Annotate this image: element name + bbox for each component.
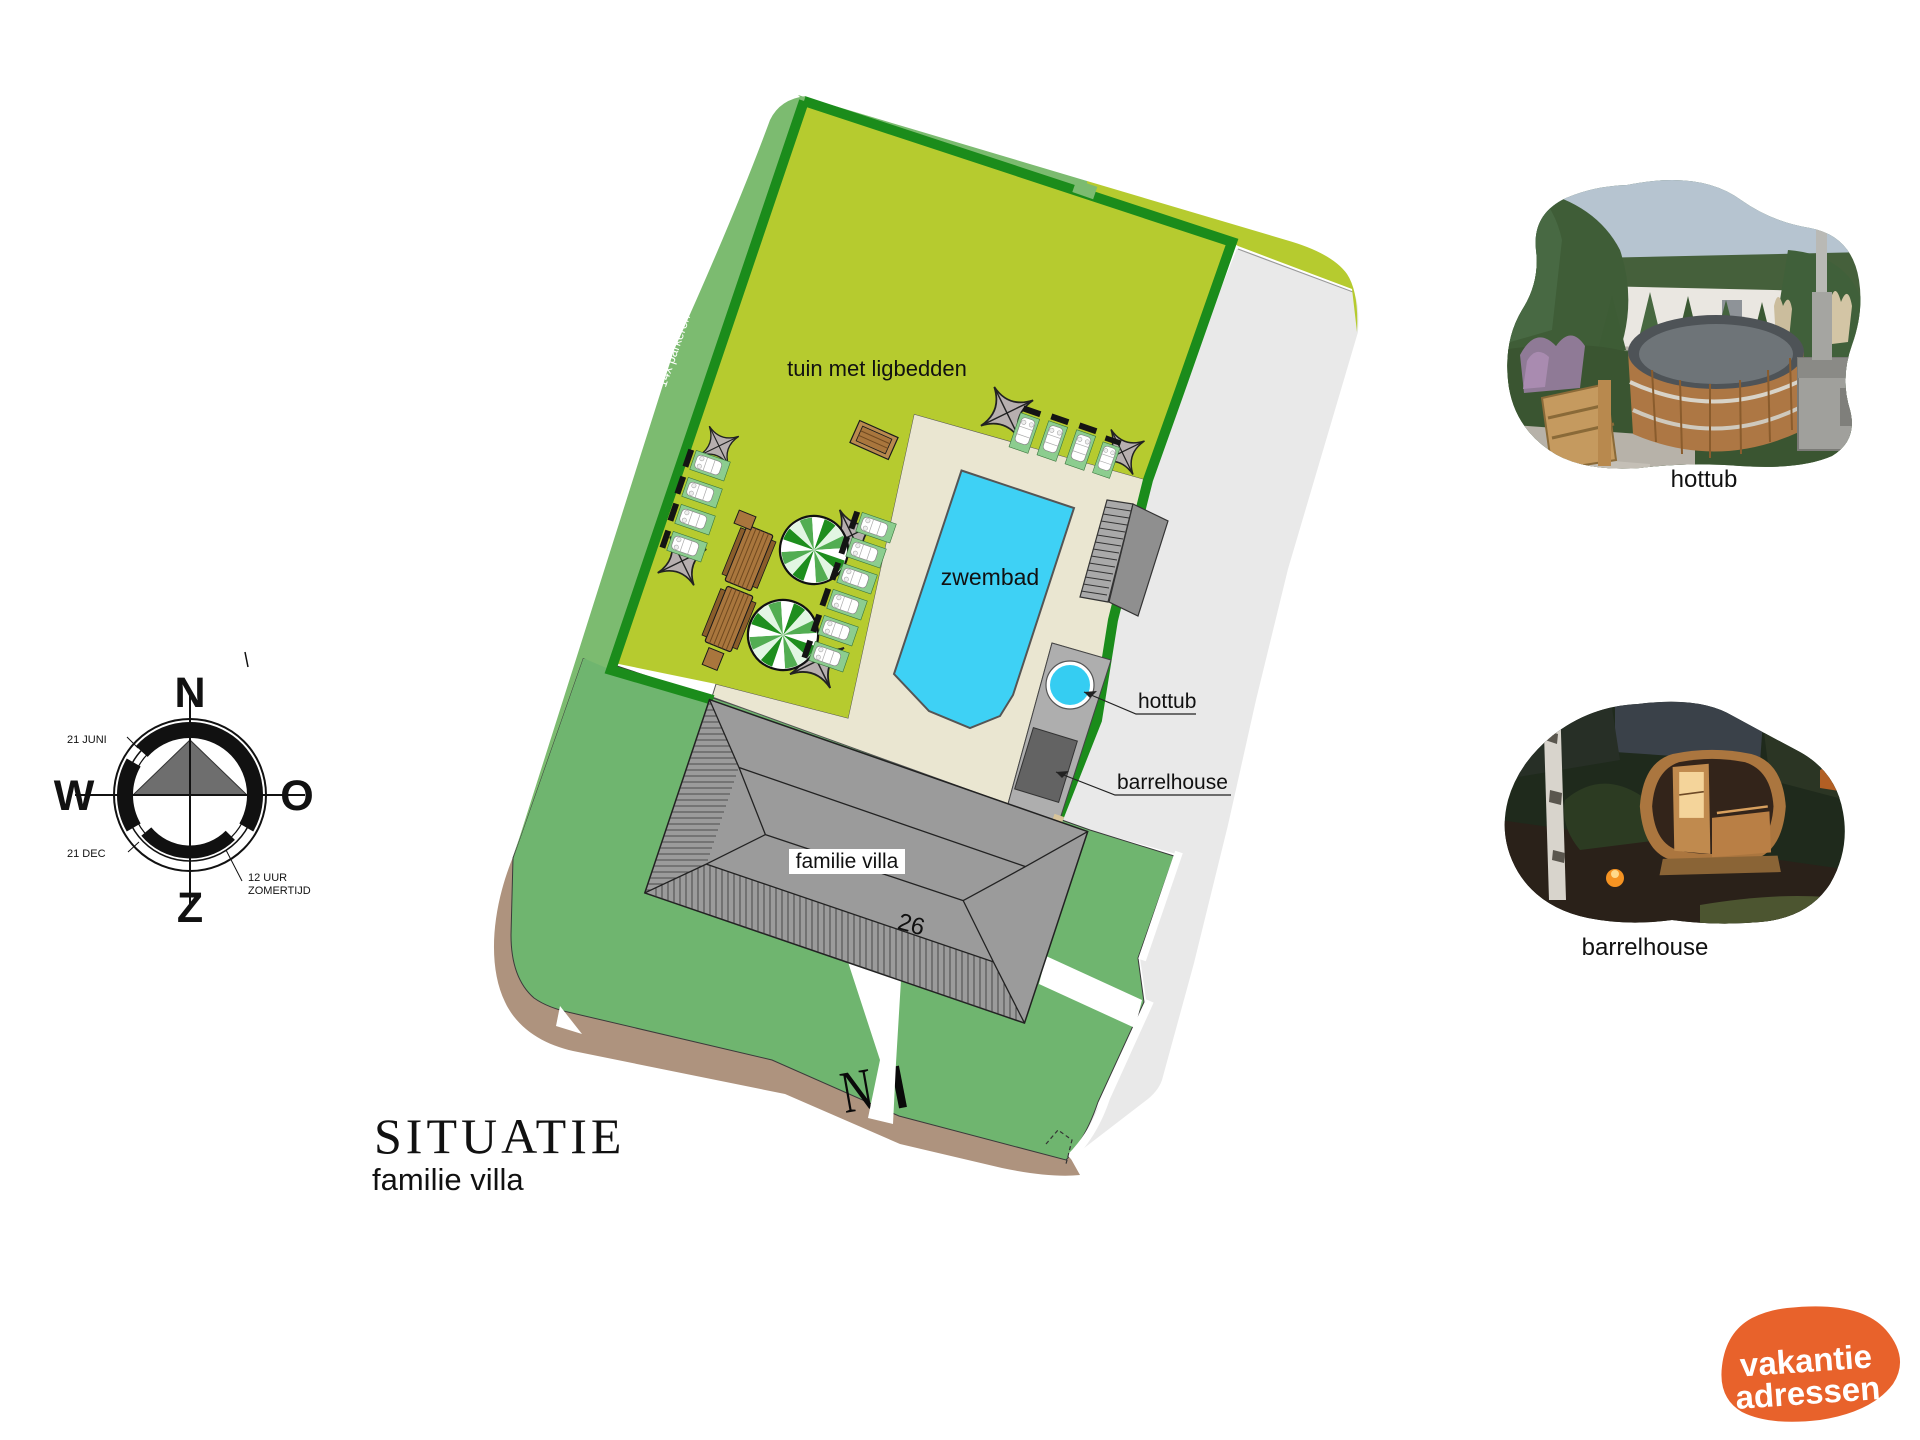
svg-text:O: O [280,772,313,820]
svg-text:familie villa: familie villa [796,850,899,873]
svg-text:barrelhouse: barrelhouse [1582,934,1709,961]
svg-text:hottub: hottub [1138,690,1196,713]
svg-text:21 JUNI: 21 JUNI [67,734,107,746]
svg-text:tuin met ligbedden: tuin met ligbedden [787,356,967,381]
svg-text:familie villa: familie villa [372,1162,524,1197]
svg-text:ZOMERTIJD: ZOMERTIJD [248,885,311,897]
svg-text:N: N [174,669,205,717]
svg-text:Z: Z [177,884,203,932]
svg-text:zwembad: zwembad [941,564,1039,590]
svg-text:21 DEC: 21 DEC [67,848,106,860]
svg-text:barrelhouse: barrelhouse [1117,771,1228,794]
svg-text:SITUATIE: SITUATIE [374,1108,625,1164]
svg-text:12 UUR: 12 UUR [248,872,287,884]
svg-text:hottub: hottub [1671,466,1738,493]
svg-text:W: W [54,772,95,820]
